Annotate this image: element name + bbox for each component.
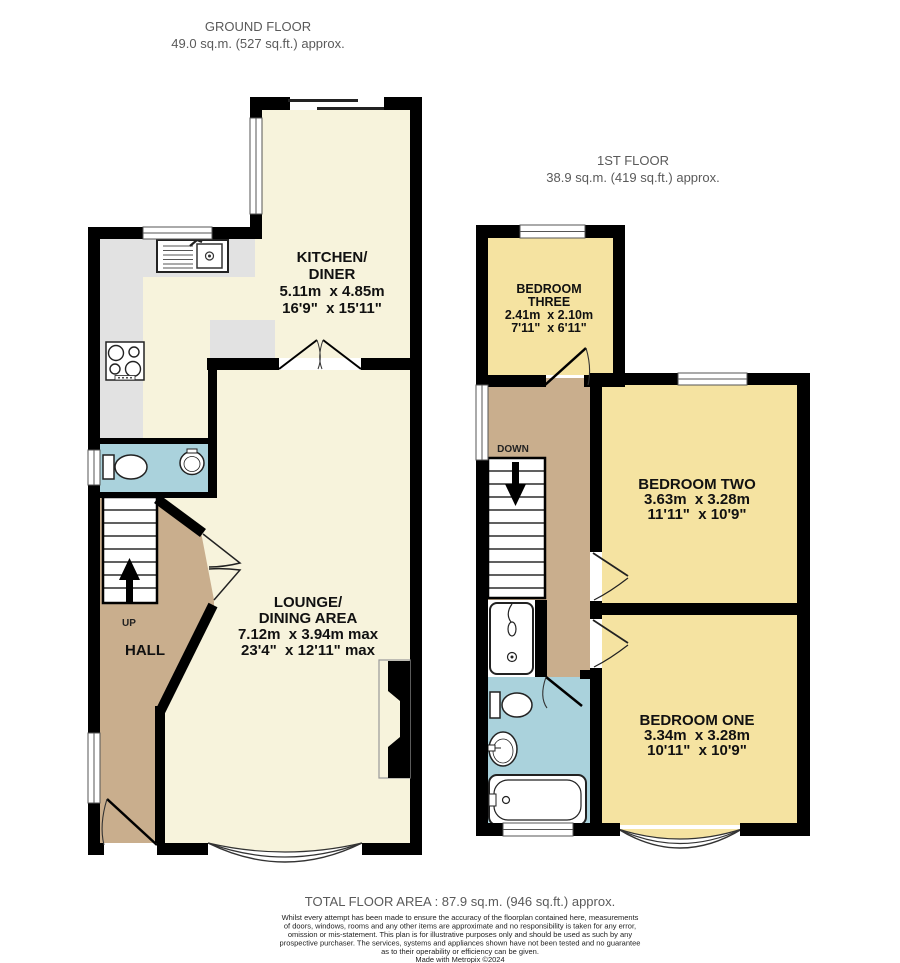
worktop-peninsula — [210, 320, 275, 358]
up-label: UP — [122, 618, 136, 629]
kitchen-label-name2: DINER — [309, 266, 356, 283]
basin-icon-ff — [488, 732, 517, 766]
bedroom-three-label-name2: THREE — [528, 295, 570, 309]
sink-icon — [157, 240, 228, 272]
kitchen-label-name1: KITCHEN/ — [297, 249, 369, 266]
hob-icon — [106, 342, 144, 380]
toilet-icon-gf — [103, 455, 147, 479]
metropix-credit: Made with Metropix ©2024 — [415, 955, 504, 963]
first-floor-title: 1ST FLOOR — [597, 153, 669, 168]
floorplan-page: KITCHEN/ DINER 5.11m x 4.85m 16'9" x 15'… — [0, 0, 900, 963]
bedroom-one-label-imperial: 10'11" x 10'9" — [647, 742, 747, 759]
lounge-label-name1: LOUNGE/ — [274, 594, 343, 611]
floorplan-svg: KITCHEN/ DINER 5.11m x 4.85m 16'9" x 15'… — [0, 0, 900, 963]
bath-icon — [489, 775, 586, 825]
bedroom-three-label-imperial: 7'11" x 6'11" — [511, 321, 587, 335]
total-floor-area: TOTAL FLOOR AREA : 87.9 sq.m. (946 sq.ft… — [305, 894, 615, 909]
bay-window-bedroom-one — [618, 829, 742, 848]
ground-floor-plan: KITCHEN/ DINER 5.11m x 4.85m 16'9" x 15'… — [88, 19, 422, 862]
hall-label: HALL — [125, 642, 165, 659]
bedroom-three-label-metric: 2.41m x 2.10m — [505, 308, 593, 322]
first-floor-area: 38.9 sq.m. (419 sq.ft.) approx. — [546, 170, 719, 185]
bedroom-two-label-imperial: 11'11" x 10'9" — [648, 506, 747, 523]
bedroom-three-label-name1: BEDROOM — [516, 282, 581, 296]
first-floor-plan: BEDROOM THREE 2.41m x 2.10m 7'11" x 6'11… — [476, 153, 810, 848]
lounge-label-name2: DINING AREA — [259, 610, 358, 627]
shower-icon — [490, 603, 533, 674]
lounge-label-imperial: 23'4" x 12'11" max — [241, 642, 376, 659]
lounge-label-metric: 7.12m x 3.94m max — [238, 626, 379, 643]
down-label: DOWN — [497, 444, 529, 455]
worktop-left — [100, 239, 143, 438]
kitchen-label-metric: 5.11m x 4.85m — [279, 283, 384, 300]
ground-floor-area: 49.0 sq.m. (527 sq.ft.) approx. — [171, 36, 344, 51]
toilet-icon-ff — [490, 692, 532, 718]
stairs-up — [103, 497, 157, 603]
ground-floor-title: GROUND FLOOR — [205, 19, 311, 34]
kitchen-label-imperial: 16'9" x 15'11" — [282, 300, 382, 317]
stairs-down — [488, 458, 545, 598]
bay-window-lounge — [208, 843, 362, 862]
footer: TOTAL FLOOR AREA : 87.9 sq.m. (946 sq.ft… — [280, 894, 641, 963]
